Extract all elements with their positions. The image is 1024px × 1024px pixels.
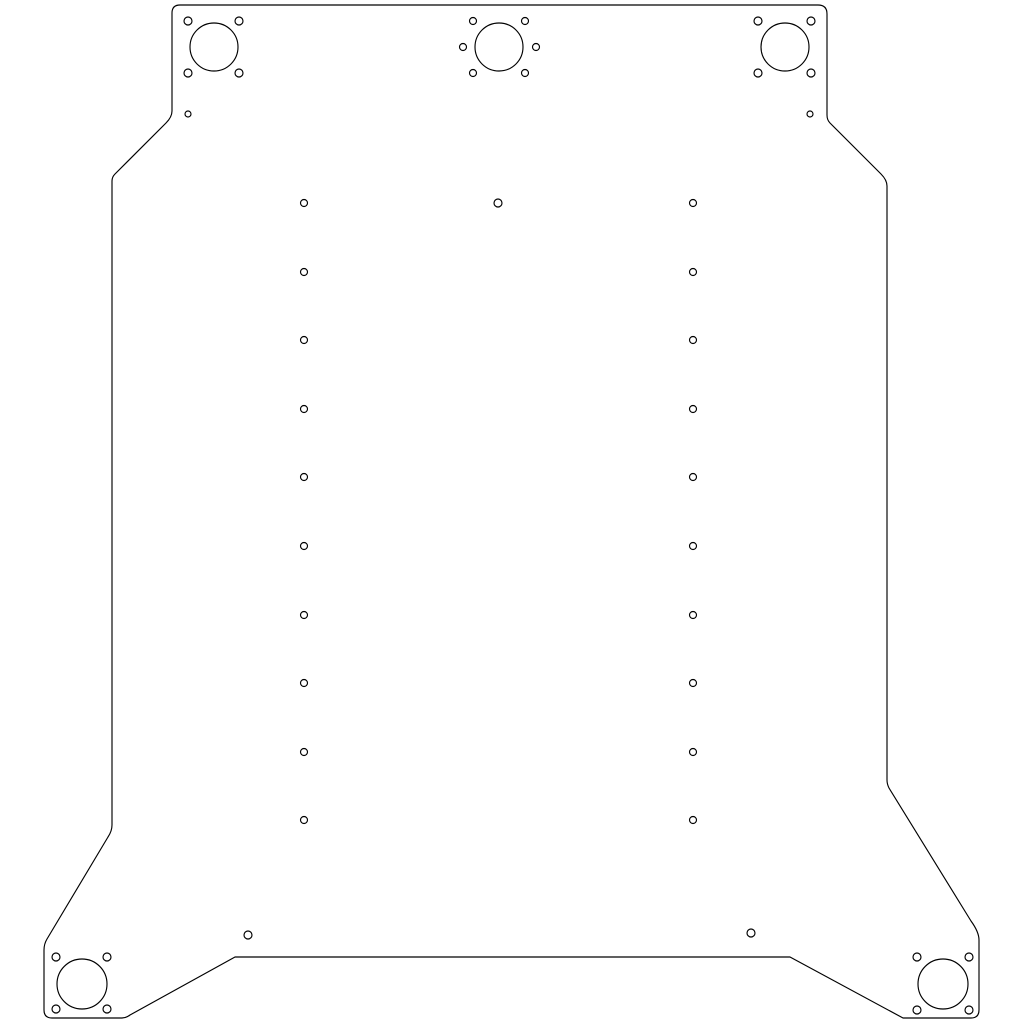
small-hole-bottom-right-foot bbox=[747, 929, 755, 937]
bolt-hole-bottom-left-2 bbox=[103, 953, 111, 961]
grid-hole-col2-row7 bbox=[690, 612, 697, 619]
bolt-hole-top-center-1 bbox=[470, 18, 477, 25]
bolt-hole-top-right-1 bbox=[754, 17, 762, 25]
pilot-hole-bottom-left bbox=[57, 959, 107, 1009]
bolt-hole-top-center-6 bbox=[522, 70, 529, 77]
pilot-hole-bottom-right bbox=[918, 959, 968, 1009]
cad-drawing-canvas bbox=[0, 0, 1024, 1024]
grid-hole-col1-row7 bbox=[301, 612, 308, 619]
grid-hole-col1-row8 bbox=[301, 680, 308, 687]
grid-hole-col1-row3 bbox=[301, 337, 308, 344]
bolt-hole-top-right-3 bbox=[754, 69, 762, 77]
grid-hole-col2-row8 bbox=[690, 680, 697, 687]
bolt-hole-top-center-2 bbox=[522, 18, 529, 25]
pilot-hole-top-left bbox=[190, 23, 238, 71]
grid-hole-col2-row2 bbox=[690, 269, 697, 276]
bolt-hole-top-left-4 bbox=[235, 69, 243, 77]
grid-hole-col2-row5 bbox=[690, 474, 697, 481]
grid-hole-col1-row9 bbox=[301, 749, 308, 756]
bolt-hole-bottom-left-4 bbox=[103, 1005, 111, 1013]
bolt-hole-top-center-5 bbox=[470, 70, 477, 77]
grid-hole-col1-row10 bbox=[301, 817, 308, 824]
grid-hole-col2-row9 bbox=[690, 749, 697, 756]
bolt-hole-top-left-3 bbox=[184, 69, 192, 77]
grid-hole-col2-row4 bbox=[690, 406, 697, 413]
plate-outline bbox=[44, 5, 979, 1018]
plate-drawing bbox=[0, 0, 1024, 1024]
bolt-hole-bottom-left-3 bbox=[52, 1005, 60, 1013]
bolt-hole-top-right-2 bbox=[807, 17, 815, 25]
bolt-hole-top-right-4 bbox=[807, 69, 815, 77]
grid-hole-col2-row10 bbox=[690, 817, 697, 824]
bolt-hole-bottom-right-3 bbox=[913, 1006, 921, 1014]
bolt-hole-bottom-right-2 bbox=[965, 953, 973, 961]
grid-hole-col2-row6 bbox=[690, 543, 697, 550]
pilot-hole-top-center bbox=[475, 23, 523, 71]
bolt-hole-bottom-right-4 bbox=[965, 1006, 973, 1014]
grid-hole-col2-row1 bbox=[690, 200, 697, 207]
bolt-hole-top-center-3 bbox=[460, 44, 467, 51]
bolt-hole-top-center-4 bbox=[533, 44, 540, 51]
grid-hole-col1-row2 bbox=[301, 269, 308, 276]
grid-hole-col1-row4 bbox=[301, 406, 308, 413]
bolt-hole-bottom-right-1 bbox=[913, 953, 921, 961]
grid-hole-col1-row1 bbox=[301, 200, 308, 207]
small-hole-below-top-left-mount bbox=[185, 111, 191, 117]
small-hole-top-center bbox=[494, 199, 502, 207]
small-hole-below-top-right-mount bbox=[807, 111, 813, 117]
grid-hole-col1-row6 bbox=[301, 543, 308, 550]
pilot-hole-top-right bbox=[761, 23, 809, 71]
bolt-hole-top-left-2 bbox=[235, 17, 243, 25]
bolt-hole-top-left-1 bbox=[184, 17, 192, 25]
grid-hole-col2-row3 bbox=[690, 337, 697, 344]
small-hole-bottom-left-foot bbox=[244, 931, 252, 939]
bolt-hole-bottom-left-1 bbox=[52, 953, 60, 961]
grid-hole-col1-row5 bbox=[301, 474, 308, 481]
